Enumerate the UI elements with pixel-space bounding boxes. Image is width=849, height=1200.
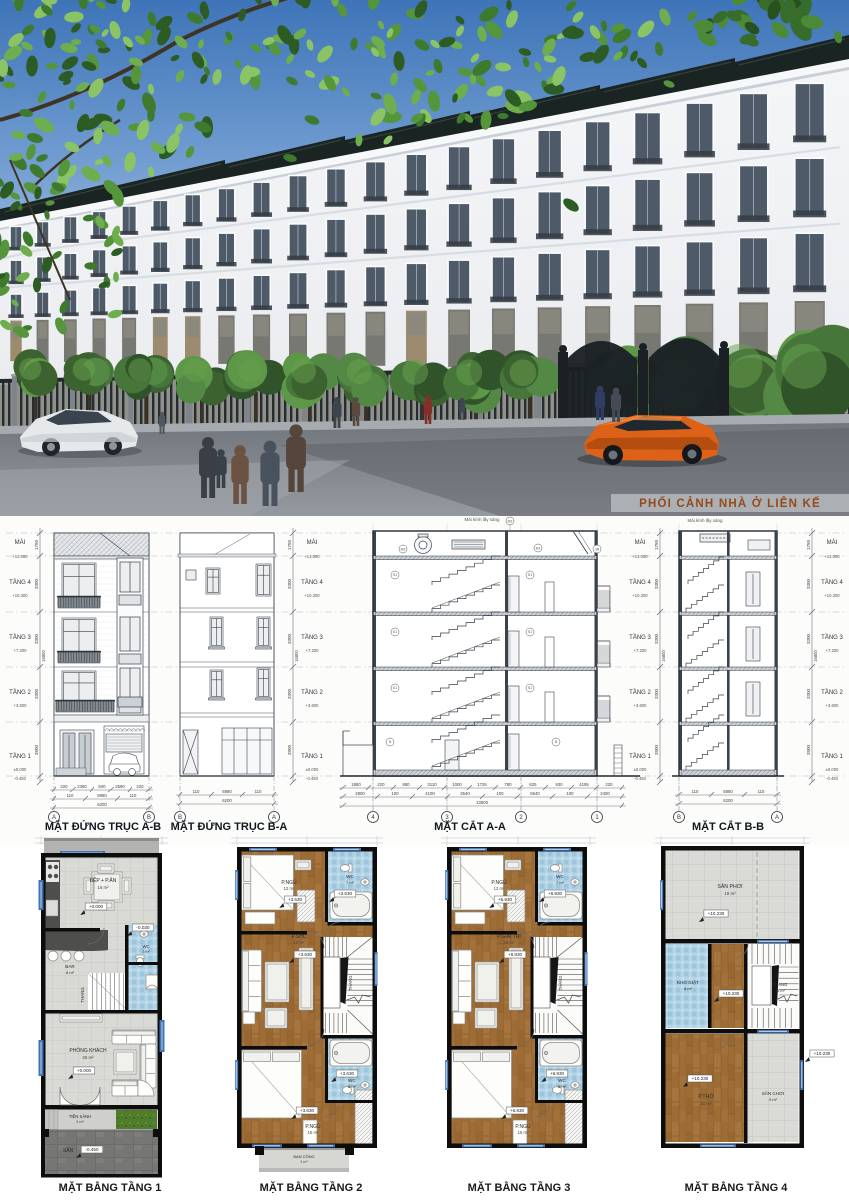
svg-text:1750: 1750 bbox=[654, 539, 659, 550]
svg-text:100: 100 bbox=[566, 791, 574, 796]
svg-text:+3.600: +3.600 bbox=[14, 703, 28, 708]
svg-text:+10.300: +10.300 bbox=[304, 593, 320, 598]
svg-text:TẦNG 3: TẦNG 3 bbox=[9, 634, 31, 641]
svg-text:S1: S1 bbox=[393, 573, 397, 577]
svg-text:880: 880 bbox=[402, 782, 410, 787]
svg-text:TẦNG 3: TẦNG 3 bbox=[821, 634, 843, 641]
svg-text:TẦNG 1: TẦNG 1 bbox=[629, 753, 651, 760]
svg-text:3 m²: 3 m² bbox=[300, 1160, 308, 1164]
svg-text:MẶT ĐỨNG TRỤC B-A: MẶT ĐỨNG TRỤC B-A bbox=[171, 820, 288, 833]
svg-text:9 m²: 9 m² bbox=[769, 1097, 778, 1102]
svg-text:Mái kính lấy sáng: Mái kính lấy sáng bbox=[464, 517, 500, 522]
svg-text:3300: 3300 bbox=[806, 578, 811, 589]
svg-text:12 m²: 12 m² bbox=[494, 886, 505, 891]
svg-text:WC: WC bbox=[558, 1078, 566, 1083]
svg-text:930: 930 bbox=[555, 782, 563, 787]
svg-text:3300: 3300 bbox=[806, 633, 811, 644]
svg-text:+3.630: +3.630 bbox=[298, 952, 313, 957]
svg-text:16800: 16800 bbox=[813, 650, 818, 662]
svg-text:3300: 3300 bbox=[654, 578, 659, 589]
svg-text:3640: 3640 bbox=[460, 791, 470, 796]
svg-text:3300: 3300 bbox=[34, 633, 39, 644]
svg-text:P.NGỦ: P.NGỦ bbox=[491, 879, 507, 886]
svg-text:1725: 1725 bbox=[477, 782, 487, 787]
svg-text:5880: 5880 bbox=[723, 789, 733, 794]
svg-text:SÂN: SÂN bbox=[63, 1147, 74, 1154]
svg-text:+6.930: +6.930 bbox=[548, 891, 563, 896]
svg-text:1000: 1000 bbox=[452, 782, 462, 787]
svg-text:N: N bbox=[555, 740, 558, 744]
svg-text:4195: 4195 bbox=[579, 782, 589, 787]
svg-text:16800: 16800 bbox=[41, 650, 46, 662]
svg-text:3300: 3300 bbox=[654, 633, 659, 644]
svg-text:+7.200: +7.200 bbox=[306, 648, 320, 653]
svg-text:MÁI: MÁI bbox=[307, 539, 318, 546]
svg-text:5540: 5540 bbox=[530, 791, 540, 796]
svg-text:4100: 4100 bbox=[425, 791, 435, 796]
svg-text:+10.230: +10.230 bbox=[814, 1051, 831, 1056]
svg-text:110: 110 bbox=[193, 789, 200, 794]
svg-text:TẦNG 3: TẦNG 3 bbox=[629, 634, 651, 641]
svg-text:TẦNG 2: TẦNG 2 bbox=[9, 689, 31, 696]
svg-text:+10.300: +10.300 bbox=[632, 593, 648, 598]
svg-text:-0.450: -0.450 bbox=[826, 776, 839, 781]
svg-text:+10.230: +10.230 bbox=[692, 1076, 709, 1081]
svg-text:7 m²: 7 m² bbox=[346, 880, 355, 885]
svg-text:THANG: THANG bbox=[80, 987, 85, 1003]
svg-text:MẶT CẮT A-A: MẶT CẮT A-A bbox=[434, 820, 506, 833]
svg-text:+6.930: +6.930 bbox=[510, 1108, 525, 1113]
svg-text:+3.630: +3.630 bbox=[300, 1108, 315, 1113]
svg-text:+3.600: +3.600 bbox=[306, 703, 320, 708]
svg-text:3300: 3300 bbox=[654, 688, 659, 699]
svg-text:MẶT BẰNG TẦNG 3: MẶT BẰNG TẦNG 3 bbox=[468, 1181, 571, 1194]
svg-text:+3.630: +3.630 bbox=[288, 897, 303, 902]
svg-text:BẾP + P.ĂN: BẾP + P.ĂN bbox=[90, 877, 117, 884]
svg-text:S1: S1 bbox=[528, 630, 532, 634]
svg-text:220: 220 bbox=[60, 784, 68, 789]
svg-text:+6.930: +6.930 bbox=[498, 897, 513, 902]
svg-text:18 m²: 18 m² bbox=[724, 891, 736, 896]
svg-text:15 m²: 15 m² bbox=[700, 1101, 712, 1106]
svg-text:TẦNG 1: TẦNG 1 bbox=[9, 753, 31, 760]
svg-text:110: 110 bbox=[67, 793, 74, 798]
svg-text:MẶT CẮT B-B: MẶT CẮT B-B bbox=[692, 820, 764, 833]
svg-text:B: B bbox=[677, 815, 681, 821]
svg-text:±0.000: ±0.000 bbox=[634, 767, 647, 772]
svg-text:+7.200: +7.200 bbox=[634, 648, 648, 653]
svg-text:+10.230: +10.230 bbox=[723, 991, 740, 996]
svg-text:M1: M1 bbox=[536, 547, 541, 551]
svg-text:M2: M2 bbox=[508, 520, 513, 524]
svg-text:P.THỜ: P.THỜ bbox=[698, 1093, 714, 1100]
svg-text:15 m²: 15 m² bbox=[518, 1130, 529, 1135]
svg-text:7 m²: 7 m² bbox=[556, 880, 565, 885]
svg-text:SÂN PHƠI: SÂN PHƠI bbox=[717, 883, 742, 890]
svg-text:TẦNG 4: TẦNG 4 bbox=[9, 579, 31, 586]
svg-text:3300: 3300 bbox=[287, 633, 292, 644]
svg-text:WC: WC bbox=[348, 1078, 356, 1083]
svg-text:1750: 1750 bbox=[34, 539, 39, 550]
svg-text:WC: WC bbox=[556, 874, 564, 879]
svg-text:SÂN CHƠI: SÂN CHƠI bbox=[762, 1090, 785, 1096]
svg-text:WC: WC bbox=[346, 874, 354, 879]
svg-text:TẦNG 2: TẦNG 2 bbox=[629, 689, 651, 696]
svg-text:THANG: THANG bbox=[558, 976, 563, 991]
svg-text:S1: S1 bbox=[528, 573, 532, 577]
svg-text:TẦNG 2: TẦNG 2 bbox=[821, 689, 843, 696]
svg-text:3900: 3900 bbox=[287, 744, 292, 755]
svg-text:MÁI: MÁI bbox=[635, 539, 646, 546]
svg-text:6 m²: 6 m² bbox=[684, 986, 693, 991]
svg-text:N: N bbox=[389, 740, 392, 744]
svg-text:±0.000: ±0.000 bbox=[306, 767, 319, 772]
svg-text:3300: 3300 bbox=[287, 688, 292, 699]
svg-text:6200: 6200 bbox=[723, 798, 733, 803]
svg-text:S1: S1 bbox=[393, 630, 397, 634]
svg-text:+13.050: +13.050 bbox=[824, 554, 840, 559]
svg-text:220: 220 bbox=[136, 784, 144, 789]
svg-text:3900: 3900 bbox=[34, 744, 39, 755]
svg-text:15 m²: 15 m² bbox=[308, 1130, 319, 1135]
svg-text:MẶT BẰNG TẦNG 1: MẶT BẰNG TẦNG 1 bbox=[59, 1181, 162, 1194]
svg-text:840: 840 bbox=[98, 784, 106, 789]
svg-text:2400: 2400 bbox=[600, 791, 610, 796]
svg-text:5880: 5880 bbox=[222, 789, 232, 794]
svg-text:BAN CÔNG: BAN CÔNG bbox=[293, 1154, 314, 1159]
svg-text:+0.000: +0.000 bbox=[77, 1068, 92, 1073]
svg-text:2590: 2590 bbox=[115, 784, 125, 789]
svg-text:MẶT ĐỨNG TRỤC A-B: MẶT ĐỨNG TRỤC A-B bbox=[45, 820, 161, 833]
svg-text:16 m²: 16 m² bbox=[97, 885, 109, 890]
svg-text:TẦNG 4: TẦNG 4 bbox=[301, 579, 323, 586]
svg-text:P.NGỦ: P.NGỦ bbox=[281, 879, 297, 886]
svg-text:15 m²: 15 m² bbox=[294, 940, 305, 945]
svg-text:P.NGỦ: P.NGỦ bbox=[305, 1123, 321, 1130]
svg-text:+10.230: +10.230 bbox=[708, 911, 725, 916]
svg-text:3N: 3N bbox=[595, 548, 600, 552]
svg-text:220: 220 bbox=[377, 782, 385, 787]
svg-text:THANG: THANG bbox=[773, 982, 788, 987]
svg-text:+3.630: +3.630 bbox=[338, 891, 353, 896]
svg-text:5980: 5980 bbox=[97, 793, 107, 798]
svg-text:3 m²: 3 m² bbox=[76, 1120, 84, 1124]
svg-text:MẶT BẰNG TẦNG 4: MẶT BẰNG TẦNG 4 bbox=[685, 1181, 789, 1194]
svg-text:-0.450: -0.450 bbox=[306, 776, 319, 781]
svg-text:+3.600: +3.600 bbox=[634, 703, 648, 708]
svg-text:1750: 1750 bbox=[806, 539, 811, 550]
svg-text:3110: 3110 bbox=[427, 782, 437, 787]
svg-text:S1: S1 bbox=[393, 686, 397, 690]
svg-text:25 m²: 25 m² bbox=[82, 1055, 94, 1060]
svg-text:3900: 3900 bbox=[806, 744, 811, 755]
svg-text:1750: 1750 bbox=[287, 539, 292, 550]
svg-text:16800: 16800 bbox=[661, 650, 666, 662]
svg-text:+7.200: +7.200 bbox=[14, 648, 28, 653]
svg-text:+3.630: +3.630 bbox=[340, 1071, 355, 1076]
svg-text:16800: 16800 bbox=[294, 650, 299, 662]
svg-text:+10.300: +10.300 bbox=[824, 593, 840, 598]
svg-text:220: 220 bbox=[605, 782, 613, 787]
svg-text:6 m²: 6 m² bbox=[558, 1084, 567, 1089]
svg-text:110: 110 bbox=[255, 789, 262, 794]
svg-text:15 m²: 15 m² bbox=[775, 989, 785, 993]
svg-text:1880: 1880 bbox=[351, 782, 361, 787]
svg-text:±0.000: ±0.000 bbox=[826, 767, 839, 772]
svg-text:3900: 3900 bbox=[654, 744, 659, 755]
svg-text:THANG: THANG bbox=[348, 976, 353, 991]
svg-text:TẦNG 1: TẦNG 1 bbox=[301, 753, 323, 760]
svg-text:TẦNG 2: TẦNG 2 bbox=[301, 689, 323, 696]
svg-text:-0.450: -0.450 bbox=[85, 1147, 98, 1152]
svg-text:3300: 3300 bbox=[34, 578, 39, 589]
svg-text:P.NGỦ: P.NGỦ bbox=[515, 1123, 531, 1130]
svg-text:+13.050: +13.050 bbox=[632, 554, 648, 559]
svg-text:PHỐI CẢNH NHÀ Ở LIÊN KẾ: PHỐI CẢNH NHÀ Ở LIÊN KẾ bbox=[639, 496, 821, 510]
svg-text:+7.200: +7.200 bbox=[826, 648, 840, 653]
svg-text:TIỀN SẢNH: TIỀN SẢNH bbox=[69, 1114, 91, 1119]
svg-text:13500: 13500 bbox=[476, 800, 489, 805]
svg-text:15 m²: 15 m² bbox=[504, 940, 515, 945]
svg-text:6 m²: 6 m² bbox=[348, 1084, 357, 1089]
svg-text:+6.930: +6.930 bbox=[550, 1071, 565, 1076]
svg-text:110: 110 bbox=[130, 793, 137, 798]
svg-text:-0.450: -0.450 bbox=[14, 776, 27, 781]
svg-text:-0.450: -0.450 bbox=[634, 776, 647, 781]
svg-text:12 m²: 12 m² bbox=[284, 886, 295, 891]
svg-text:8 m²: 8 m² bbox=[66, 970, 75, 975]
svg-text:+6.930: +6.930 bbox=[508, 952, 523, 957]
svg-text:100: 100 bbox=[391, 791, 399, 796]
svg-text:±0.000: ±0.000 bbox=[14, 767, 27, 772]
svg-text:625: 625 bbox=[529, 782, 537, 787]
svg-text:TẦNG 1: TẦNG 1 bbox=[821, 753, 843, 760]
svg-text:2360: 2360 bbox=[77, 784, 87, 789]
svg-text:BAR: BAR bbox=[65, 964, 75, 969]
svg-text:110: 110 bbox=[758, 789, 765, 794]
svg-text:TẦNG 4: TẦNG 4 bbox=[629, 579, 651, 586]
svg-text:TẦNG 4: TẦNG 4 bbox=[821, 579, 843, 586]
svg-text:+13.050: +13.050 bbox=[304, 554, 320, 559]
svg-text:2800: 2800 bbox=[355, 791, 365, 796]
svg-text:MẶT BẰNG TẦNG 2: MẶT BẰNG TẦNG 2 bbox=[260, 1181, 363, 1194]
svg-text:+13.050: +13.050 bbox=[12, 554, 28, 559]
svg-text:A: A bbox=[775, 815, 779, 821]
svg-text:780: 780 bbox=[504, 782, 512, 787]
svg-text:100: 100 bbox=[496, 791, 504, 796]
svg-text:MÁI: MÁI bbox=[827, 539, 838, 546]
svg-text:3300: 3300 bbox=[806, 688, 811, 699]
svg-text:MÁI: MÁI bbox=[15, 539, 26, 546]
svg-text:M3: M3 bbox=[401, 548, 406, 552]
svg-text:6200: 6200 bbox=[97, 802, 107, 807]
svg-text:-0.030: -0.030 bbox=[136, 925, 149, 930]
svg-text:110: 110 bbox=[692, 789, 699, 794]
svg-text:2 m²: 2 m² bbox=[142, 950, 150, 954]
svg-text:S1: S1 bbox=[528, 686, 532, 690]
svg-text:+3.600: +3.600 bbox=[826, 703, 840, 708]
svg-text:TẦNG 3: TẦNG 3 bbox=[301, 634, 323, 641]
svg-text:6200: 6200 bbox=[222, 798, 232, 803]
svg-text:+10.300: +10.300 bbox=[12, 593, 28, 598]
svg-text:+0.000: +0.000 bbox=[89, 904, 104, 909]
svg-text:KHO GIẶT: KHO GIẶT bbox=[677, 979, 699, 985]
svg-text:Mái kính lấy sáng: Mái kính lấy sáng bbox=[687, 518, 723, 523]
svg-text:WC: WC bbox=[142, 944, 149, 949]
svg-text:PHÒNG KHÁCH: PHÒNG KHÁCH bbox=[69, 1047, 107, 1054]
svg-text:3300: 3300 bbox=[287, 578, 292, 589]
svg-text:3300: 3300 bbox=[34, 688, 39, 699]
